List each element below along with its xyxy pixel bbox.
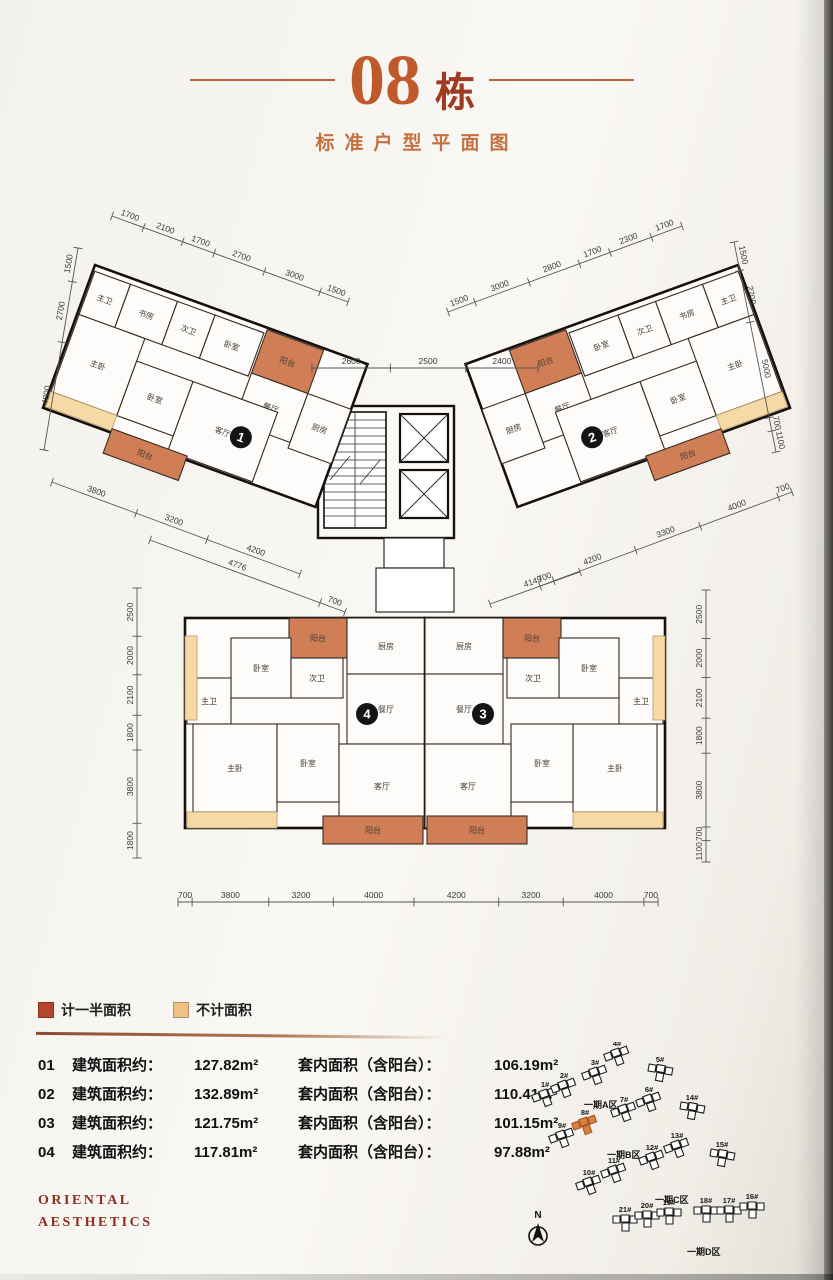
building-label: 15# xyxy=(716,1140,729,1149)
building-label: 2# xyxy=(560,1071,569,1080)
building-icon xyxy=(635,1211,659,1227)
building-icon xyxy=(600,1162,628,1185)
area-no: 04 xyxy=(38,1144,72,1161)
dim-label: 3000 xyxy=(489,278,510,294)
dim-label: 1100 xyxy=(694,842,704,861)
room-accent-strip xyxy=(185,636,197,720)
unit-badge-label: 4 xyxy=(363,707,371,722)
building-suffix: 栋 xyxy=(435,60,475,118)
building-icon xyxy=(694,1206,718,1222)
dim-label: 3800 xyxy=(86,483,107,499)
unit-badge-label: 3 xyxy=(479,707,486,722)
dim-label: 4200 xyxy=(447,890,466,900)
area-label: 套内面积（含阳台）： xyxy=(298,1083,494,1104)
brochure-page: 08 栋 标准户型平面图 主卫书房次卫卧室阳台餐厅厨房主卧卧室客厅阳台1主卫书房… xyxy=(0,0,833,1280)
room-label-master-bath: 主卫 xyxy=(633,696,649,706)
area-val: 127.82m² xyxy=(194,1057,298,1074)
dimension-lower-left: 250020002100180038001800 xyxy=(125,588,142,858)
room-label-master-bedroom: 主卧 xyxy=(227,763,243,773)
site-building-13: 13# xyxy=(660,1127,692,1161)
dim-label: 1800 xyxy=(125,723,135,742)
site-map-svg: N 1#2#3#4#5#6#7#14#8#9#13#12#15#11#10#18… xyxy=(522,1042,827,1280)
building-label: 7# xyxy=(620,1095,629,1104)
dimension-lower-bottom: 700380032004000420032004000700 xyxy=(178,890,658,907)
room-label-balcony-bottom: 阳台 xyxy=(365,825,381,835)
unit-area-table: 01建筑面积约：127.82m²套内面积（含阳台）：106.19m²02建筑面积… xyxy=(38,1054,604,1170)
dim-label: 3300 xyxy=(655,524,676,540)
zone-label: 一期C区 xyxy=(655,1194,689,1205)
room-label-bedroom2: 卧室 xyxy=(534,758,550,768)
building-label: 14# xyxy=(686,1093,699,1102)
building-label: 21# xyxy=(619,1205,632,1214)
room-accent-strip xyxy=(653,636,665,720)
floor-plan: 主卫书房次卫卧室阳台餐厅厨房主卧卧室客厅阳台1主卫书房次卫卧室阳台餐厅厨房主卧卧… xyxy=(0,150,833,975)
dim-label: 700 xyxy=(644,890,658,900)
dim-label: 1700 xyxy=(654,217,675,233)
dim-label: 1800 xyxy=(125,831,135,850)
room-label-master-bath: 主卫 xyxy=(201,696,217,706)
unit-2: 主卫书房次卫卧室阳台餐厅厨房主卧卧室客厅阳台2 xyxy=(465,265,797,528)
area-label: 建筑面积约： xyxy=(72,1141,194,1162)
area-row-02: 02建筑面积约：132.89m²套内面积（含阳台）：110.41m² xyxy=(38,1083,604,1112)
building-label: 16# xyxy=(746,1192,759,1201)
dimension-lower-right: 250020002100180038007001100 xyxy=(694,590,711,862)
zone-label: 一期D区 xyxy=(687,1246,721,1257)
building-icon xyxy=(548,1127,576,1150)
room-label-bedroom2: 卧室 xyxy=(300,758,316,768)
building-label: 12# xyxy=(646,1143,659,1152)
dim-label: 700 xyxy=(771,415,784,431)
dim-label: 2400 xyxy=(492,356,511,366)
building-icon xyxy=(550,1077,578,1100)
dim-label: 1500 xyxy=(448,292,469,308)
legend-item-excluded-area: 不计面积 xyxy=(173,1000,252,1020)
area-label: 建筑面积约： xyxy=(72,1054,194,1075)
unit-4: 阳台厨房卧室次卫餐厅主卫主卧卧室客厅阳台4 xyxy=(185,618,425,844)
building-label: 20# xyxy=(641,1201,654,1210)
area-no: 03 xyxy=(38,1115,72,1132)
dim-label: 1800 xyxy=(694,726,704,745)
header: 08 栋 xyxy=(0,42,824,118)
dim-label: 700 xyxy=(178,890,192,900)
area-legend: 计一半面积 不计面积 xyxy=(38,1000,252,1020)
area-no: 02 xyxy=(38,1086,72,1103)
dim-label: 2800 xyxy=(541,258,562,274)
zone-label: 一期B区 xyxy=(607,1149,641,1160)
area-label: 套内面积（含阳台）： xyxy=(298,1141,494,1162)
dim-label: 2500 xyxy=(125,602,135,621)
area-val: 117.81m² xyxy=(194,1144,298,1161)
legend-divider xyxy=(36,1032,448,1039)
dim-label: 2000 xyxy=(125,646,135,665)
dimension-unit1-bottom: 380032004200 xyxy=(50,478,301,578)
dim-label: 2600 xyxy=(342,356,361,366)
building-icon xyxy=(647,1063,673,1083)
building-icon xyxy=(575,1174,603,1197)
dim-label: 2700 xyxy=(231,248,252,264)
dim-label: 2000 xyxy=(694,648,704,667)
area-val: 121.75m² xyxy=(194,1115,298,1132)
dim-label: 1700 xyxy=(190,233,211,249)
dim-label: 3200 xyxy=(521,890,540,900)
brand-line1: ORIENTAL xyxy=(38,1190,152,1212)
building-label: 6# xyxy=(645,1085,654,1094)
floor-plan-svg: 主卫书房次卫卧室阳台餐厅厨房主卧卧室客厅阳台1主卫书房次卫卧室阳台餐厅厨房主卧卧… xyxy=(0,150,833,970)
brand-mark: ORIENTAL AESTHETICS xyxy=(38,1190,152,1234)
highlighted-building-icon xyxy=(571,1114,599,1137)
unit-3: 阳台厨房卧室次卫餐厅主卫主卧卧室客厅阳台3 xyxy=(425,618,665,844)
room-label-dining: 餐厅 xyxy=(456,705,472,714)
legend-item-half-area: 计一半面积 xyxy=(38,1000,131,1020)
building-icon xyxy=(638,1149,666,1172)
area-no: 01 xyxy=(38,1057,72,1074)
dim-label: 3000 xyxy=(284,267,305,283)
unit-1: 主卫书房次卫卧室阳台餐厅厨房主卧卧室客厅阳台1 xyxy=(35,265,367,528)
building-label: 13# xyxy=(671,1131,684,1140)
room-label-master-bedroom: 主卧 xyxy=(607,763,623,773)
site-building-9: 9# xyxy=(545,1118,577,1151)
room-accent-strip2 xyxy=(187,812,277,828)
building-label: 17# xyxy=(723,1196,736,1205)
building-icon xyxy=(657,1208,681,1224)
dim-label: 3800 xyxy=(125,777,135,796)
building-icon xyxy=(613,1215,637,1231)
building-icon xyxy=(709,1148,735,1168)
building-label: 5# xyxy=(656,1055,665,1064)
room-label-balcony-top: 阳台 xyxy=(310,633,326,643)
room-label-living: 客厅 xyxy=(374,781,390,791)
building-icon xyxy=(717,1206,741,1222)
room-accent-strip2 xyxy=(573,812,663,828)
site-building-5: 5# xyxy=(647,1053,675,1083)
brand-line2: AESTHETICS xyxy=(38,1212,152,1234)
area-row-03: 03建筑面积约：121.75m²套内面积（含阳台）：101.15m² xyxy=(38,1112,604,1141)
site-building-6: 6# xyxy=(632,1082,664,1115)
site-building-14: 14# xyxy=(679,1090,707,1121)
area-label: 建筑面积约： xyxy=(72,1083,194,1104)
title-rule-left xyxy=(190,79,335,81)
building-label: 3# xyxy=(591,1058,600,1067)
dim-label: 3200 xyxy=(292,890,311,900)
building-icon xyxy=(740,1202,764,1218)
dim-label: 2100 xyxy=(694,688,704,707)
room-label-kitchen: 厨房 xyxy=(456,641,472,651)
building-icon xyxy=(581,1064,609,1087)
area-label: 套内面积（含阳台）： xyxy=(298,1112,494,1133)
site-building-3: 3# xyxy=(578,1055,610,1088)
excluded-area-swatch xyxy=(173,1002,189,1018)
dim-label: 1500 xyxy=(326,282,347,298)
dim-label: 2100 xyxy=(125,685,135,704)
dim-label: 4000 xyxy=(364,890,383,900)
dim-label: 1700 xyxy=(582,243,603,259)
zone-label: 一期A区 xyxy=(584,1099,618,1110)
dim-label: 2100 xyxy=(155,220,176,236)
building-icon xyxy=(635,1091,663,1114)
room-label-bedroom: 卧室 xyxy=(581,663,597,673)
dim-label: 1500 xyxy=(62,253,75,274)
room-label-dining: 餐厅 xyxy=(378,705,394,714)
site-building-17: 17# xyxy=(717,1196,741,1222)
room-label-balcony-bottom: 阳台 xyxy=(469,825,485,835)
building-icon xyxy=(603,1045,631,1068)
dim-label: 3800 xyxy=(694,780,704,799)
room-label-balcony-top: 阳台 xyxy=(524,633,540,643)
north-needle-icon xyxy=(532,1223,544,1242)
dim-label: 4776 xyxy=(227,557,248,573)
site-building-10: 10# xyxy=(572,1164,604,1198)
dim-label: 4000 xyxy=(594,890,613,900)
dim-label: 1100 xyxy=(774,430,787,450)
site-map: N 1#2#3#4#5#6#7#14#8#9#13#12#15#11#10#18… xyxy=(522,1042,827,1280)
site-building-21: 21# xyxy=(613,1205,637,1231)
building-label: 9# xyxy=(558,1121,567,1130)
building-label: 18# xyxy=(700,1196,713,1205)
dim-label: 3800 xyxy=(221,890,240,900)
half-area-swatch xyxy=(38,1002,54,1018)
lobby xyxy=(384,538,444,568)
building-label: 1# xyxy=(541,1080,550,1089)
building-label: 10# xyxy=(583,1168,596,1177)
area-row-04: 04建筑面积约：117.81m²套内面积（含阳台）：97.88m² xyxy=(38,1141,604,1170)
north-indicator: N xyxy=(529,1210,547,1245)
legend-label: 计一半面积 xyxy=(61,1000,131,1020)
dim-label: 1500 xyxy=(737,245,751,266)
room-label-bedroom: 卧室 xyxy=(253,663,269,673)
dim-label: 1700 xyxy=(120,207,141,223)
site-building-18: 18# xyxy=(694,1196,718,1222)
area-val: 132.89m² xyxy=(194,1086,298,1103)
room-label-second-bath: 次卫 xyxy=(309,673,325,683)
dim-label: 2500 xyxy=(419,356,438,366)
dim-label: 2300 xyxy=(618,230,639,246)
area-label: 套内面积（含阳台）： xyxy=(298,1054,494,1075)
building-label: 4# xyxy=(613,1042,622,1048)
dim-label: 2500 xyxy=(694,605,704,624)
corridor xyxy=(376,568,454,612)
title-rule-right xyxy=(489,79,634,81)
room-label-kitchen: 厨房 xyxy=(378,641,394,651)
page-edge xyxy=(824,0,833,1280)
legend-label: 不计面积 xyxy=(196,1000,252,1020)
building-icon xyxy=(679,1101,705,1121)
building-icon xyxy=(663,1137,691,1160)
area-label: 建筑面积约： xyxy=(72,1112,194,1133)
dim-label: 3200 xyxy=(163,512,184,528)
area-row-01: 01建筑面积约：127.82m²套内面积（含阳台）：106.19m² xyxy=(38,1054,604,1083)
room-label-living: 客厅 xyxy=(460,781,476,791)
site-building-15: 15# xyxy=(709,1137,737,1168)
site-building-16: 16# xyxy=(740,1192,764,1218)
dim-label: 4200 xyxy=(582,551,603,567)
room-label-second-bath: 次卫 xyxy=(525,673,541,683)
building-number: 08 xyxy=(349,44,421,116)
dim-label: 4000 xyxy=(726,497,747,513)
dimension-unit2-bottom-2: 4149 xyxy=(488,568,581,608)
dim-label: 2700 xyxy=(54,300,67,321)
page-edge-shade xyxy=(796,0,824,1280)
dim-label: 4200 xyxy=(245,542,266,558)
page-bottom-edge xyxy=(0,1274,833,1280)
north-label: N xyxy=(534,1210,541,1221)
dim-label: 700 xyxy=(694,826,704,840)
